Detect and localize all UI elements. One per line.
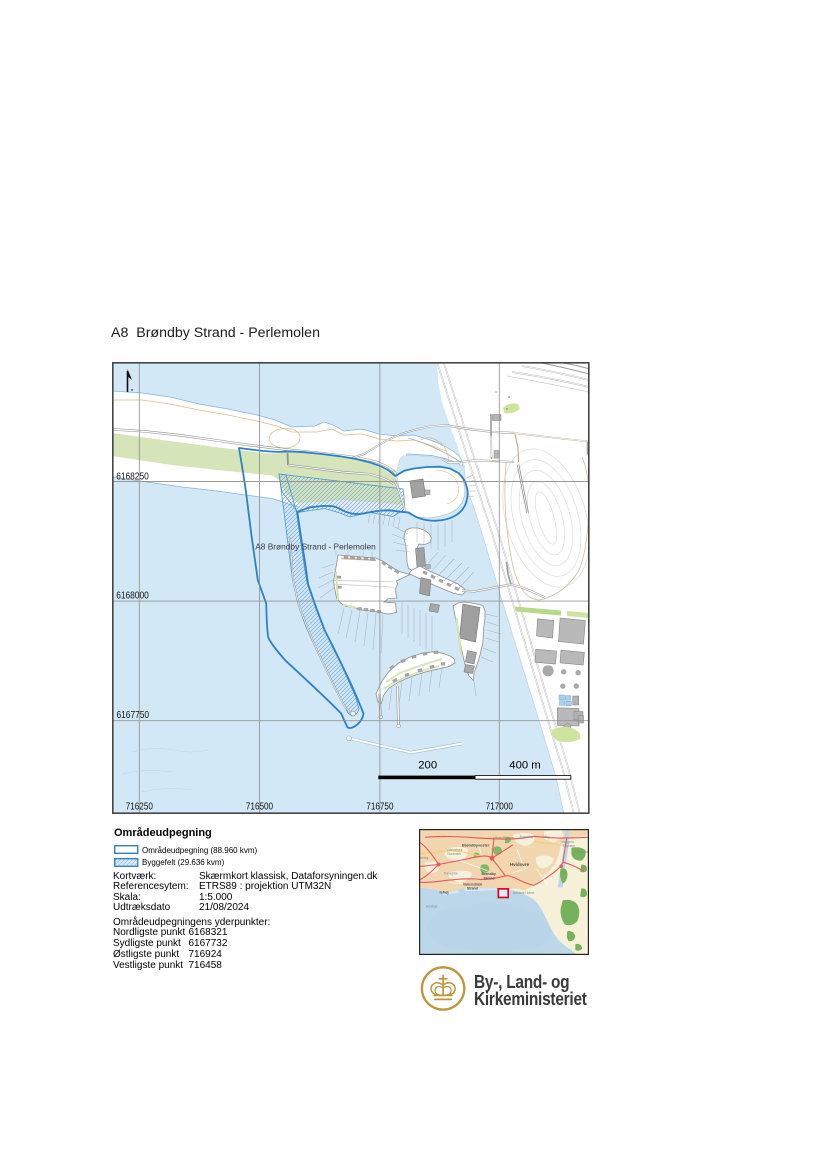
svg-text:717000: 717000 [486, 800, 513, 812]
svg-text:Strand: Strand [484, 876, 495, 880]
svg-text:Tranegilde: Tranegilde [444, 871, 459, 875]
svg-text:200: 200 [418, 760, 437, 772]
svg-text:716250: 716250 [126, 800, 153, 812]
svg-text:6167750: 6167750 [117, 709, 150, 721]
svg-text:Brøndby: Brøndby [482, 872, 496, 876]
svg-text:Nordmark: Nordmark [448, 851, 462, 855]
svg-text:Frederiks: Frederiks [576, 849, 589, 853]
svg-text:716750: 716750 [366, 800, 393, 812]
svg-text:Hundige: Hundige [426, 904, 438, 908]
svg-text:Strand: Strand [467, 886, 478, 890]
svg-text:716500: 716500 [246, 800, 273, 812]
svg-text:Tarnby: Tarnby [419, 855, 429, 859]
svg-text:6168000: 6168000 [116, 590, 149, 602]
svg-text:Hvidovre: Hvidovre [510, 862, 530, 867]
svg-text:Avedøre Holme: Avedøre Holme [513, 891, 535, 895]
svg-text:Brøndbyøster: Brøndbyøster [496, 835, 515, 839]
svg-text:Rosenhøj: Rosenhøj [520, 834, 534, 838]
svg-text:Enghave: Enghave [563, 843, 576, 847]
svg-text:A8 Brøndby Strand - Perlemolen: A8 Brøndby Strand - Perlemolen [255, 541, 376, 551]
svg-text:Ishøj: Ishøj [440, 889, 449, 894]
svg-text:Brøndbyvester: Brøndbyvester [462, 842, 490, 847]
svg-text:Valby: Valby [542, 834, 550, 838]
svg-text:400 m: 400 m [509, 760, 540, 772]
svg-text:6168250: 6168250 [116, 470, 149, 482]
